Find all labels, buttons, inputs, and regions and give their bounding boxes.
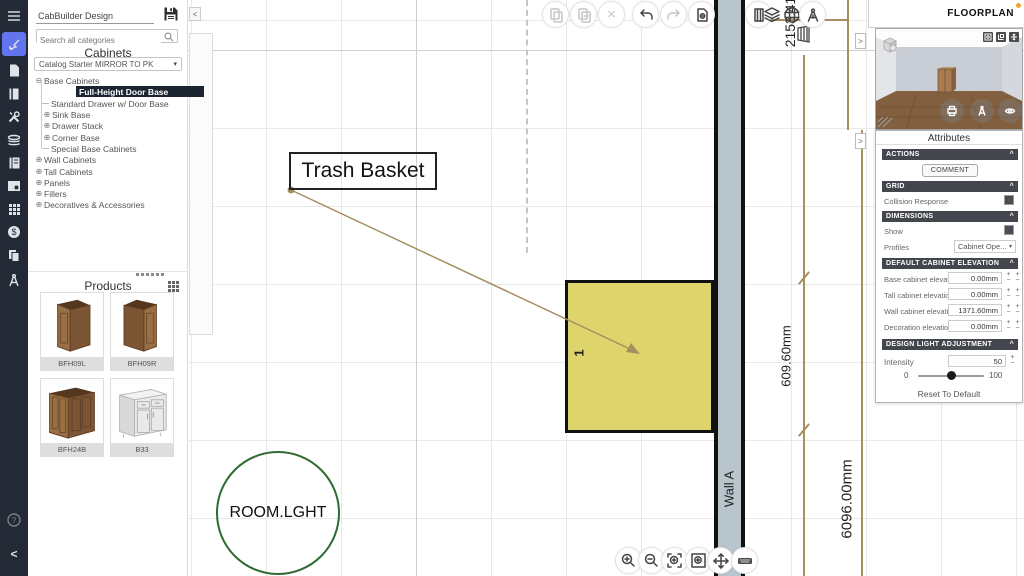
minus-icon[interactable]: − [1009,361,1016,367]
elevation-stepper[interactable]: +− +− [1005,304,1021,316]
product-thumbnail [111,293,173,357]
show-dimensions-label: Show [884,227,903,236]
chevron-up-icon: ^ [1010,341,1014,348]
material-layers-icon [7,134,21,147]
tree-item-label: Sink Base [52,110,90,120]
product-card[interactable]: BFH09R [110,292,174,371]
status-dot [1016,3,1021,8]
reset-to-default-button[interactable]: Reset To Default [876,389,1022,399]
tree-item-full-height-door-base[interactable]: Full-Height Door Base [76,86,204,97]
section-header-light[interactable]: DESIGN LIGHT ADJUSTMENT ^ [882,339,1018,350]
section-header-grid[interactable]: GRID ^ [882,181,1018,192]
nav-catalog[interactable] [0,58,28,82]
tree-item-panels[interactable]: ⊕Panels [34,177,70,188]
collapse-right-icon: > [858,137,863,146]
chevron-up-icon: ^ [1010,213,1014,220]
measure-keyboard-icon [736,552,754,570]
save-floppy-icon [162,5,180,23]
view-title: FLOORPLAN [947,8,1014,19]
measure-keyboard-button[interactable] [731,547,758,574]
undo-icon [638,7,654,23]
products-grid-view-button[interactable] [168,281,179,292]
zoom-fit-icon [690,552,707,569]
nav-pricing[interactable]: $ [0,220,28,244]
duplicate-icon [576,7,592,23]
tree-item-drawer-stack[interactable]: ⊕Drawer Stack [42,120,103,131]
annotation-trash-basket[interactable]: Trash Basket [289,152,437,190]
tools-icon [7,110,21,124]
minus-icon[interactable]: − [1005,278,1012,284]
chevron-down-icon: ▾ [173,60,177,68]
pricing-dollar-icon: $ [7,225,21,239]
products-drag-handle[interactable] [136,273,164,276]
print-button[interactable] [940,99,964,123]
chevron-up-icon: ^ [1010,260,1014,267]
render-screen-icon [7,180,21,192]
tool-palette [189,33,213,335]
elevation-value: 0.00mm [971,322,998,331]
tree-item-sink-base[interactable]: ⊕Sink Base [42,109,90,120]
elevation-row-label: Decoration elevation [884,323,952,332]
section-title: DIMENSIONS [886,213,933,220]
nav-design-active[interactable] [2,32,26,56]
help-icon: ? [7,513,21,527]
minus-icon[interactable]: − [1014,278,1021,284]
preview-collapse-button[interactable]: > [855,33,866,49]
tree-item-label: Decoratives & Accessories [44,200,145,210]
svg-text:?: ? [12,516,17,525]
tree-expand-icon[interactable]: ⊕ [34,155,44,164]
duplicate-button[interactable] [570,1,597,28]
comment-button[interactable]: COMMENT [922,164,978,177]
tree-item-label: Wall Cabinets [44,155,96,165]
view-header: FLOORPLAN [868,0,1024,28]
zoom-selection-button[interactable] [661,547,688,574]
nav-materials[interactable] [0,128,28,152]
grid-view-icon [168,281,179,292]
save-button[interactable] [162,5,180,23]
intensity-stepper[interactable]: +− [1009,355,1016,367]
product-card[interactable]: B33 [110,378,174,457]
drafting-compass-icon [805,7,821,23]
draw-design-icon [7,37,21,51]
section-title: DESIGN LIGHT ADJUSTMENT [886,341,992,348]
show-dimensions-checkbox[interactable] [1004,225,1014,235]
product-code: BFH09L [41,357,103,370]
dimension-text-cabinet: 609.60mm [779,325,794,386]
collision-response-label: Collision Response [884,197,948,206]
catalog-value: Catalog Starter MIRROR TO PK [39,60,153,69]
product-code: BFH09R [111,357,173,370]
tree-expand-icon[interactable]: ⊕ [34,178,44,187]
section-title: DEFAULT CABINET ELEVATION [886,260,999,267]
elevation-row-label: Wall cabinet elevation [884,307,957,316]
tree-item-label: Base Cabinets [44,76,99,86]
tree-item-wall-cabinets[interactable]: ⊕Wall Cabinets [34,154,96,165]
product-thumbnail [41,293,103,357]
copy-icon [548,7,564,23]
zoom-out-icon [643,552,660,569]
tree-item-label: Panels [44,178,70,188]
drafting-compass-icon [7,273,21,288]
slider-min-label: 0 [904,371,908,380]
eye-icon [1004,105,1016,117]
grid-globe-icon [783,6,801,24]
redo-button[interactable] [660,1,687,28]
intensity-slider-thumb[interactable] [947,371,956,380]
nav-door-styles[interactable] [0,82,28,106]
minus-icon[interactable]: − [1014,326,1021,332]
print-icon [946,105,958,117]
tree-expand-icon[interactable]: ⊕ [34,189,44,198]
product-code: BFH24B [41,443,103,456]
elevation-value: 0.00mm [971,274,998,283]
section-header-dimensions[interactable]: DIMENSIONS ^ [882,211,1018,222]
rail-collapse-button[interactable]: < [0,542,28,566]
minus-icon[interactable]: − [1005,294,1012,300]
attributes-title: Attributes [876,131,1022,145]
snapshot-button[interactable] [983,32,993,42]
tree-item-base-cabinets[interactable]: ⊖Base Cabinets [34,75,99,86]
zoom-selection-icon [666,552,683,569]
minus-icon[interactable]: − [1014,294,1021,300]
nav-reports[interactable] [0,151,28,175]
design-name-input[interactable] [36,8,154,24]
elevation-row-label: Tall cabinet elevation [884,291,954,300]
tree-item-label: Corner Base [52,133,100,143]
elevation-stepper[interactable]: +− +− [1005,288,1021,300]
zoom-in-icon [620,552,637,569]
search-icon [164,32,174,42]
tree-item-standard-drawer[interactable]: Standard Drawer w/ Door Base [42,98,169,109]
nav-parts[interactable] [0,197,28,221]
section-title: GRID [886,183,905,190]
delete-button[interactable]: × [598,1,625,28]
elevation-stepper[interactable]: +− +− [1005,272,1021,284]
reset-label: Reset To Default [918,389,981,399]
collision-response-checkbox[interactable] [1004,195,1014,205]
tree-item-corner-base[interactable]: ⊕Corner Base [42,132,100,143]
cabinet-item[interactable] [565,280,714,433]
catalog-document-icon [8,63,21,77]
preview-3d-panel[interactable] [875,28,1023,130]
tree-branch-line [42,103,49,104]
layout-button[interactable] [996,32,1006,42]
elevation-value: 1371.60mm [958,306,998,315]
collapse-right-icon: > [858,37,863,46]
product-thumbnail [41,379,103,443]
tree-item-label: Full-Height Door Base [79,87,168,97]
room-light-symbol[interactable]: ROOM.LGHT [216,451,340,575]
drafting-compass-button[interactable] [799,1,826,28]
intensity-label: Intensity [884,358,914,367]
tree-expand-icon[interactable]: ⊕ [42,133,52,142]
tree-item-label: Special Base Cabinets [51,144,137,154]
cabinet-number: 1 [572,349,587,356]
tree-item-label: Drawer Stack [52,121,103,131]
search-input[interactable] [37,35,161,47]
orbit-view-button[interactable] [998,99,1022,123]
copy-documents-icon [7,248,21,262]
svg-text:$: $ [11,227,16,237]
products-section-title: Products [28,279,188,293]
parts-grid-icon [8,203,21,216]
product-card[interactable]: BFH24B [40,378,104,457]
chevron-up-icon: ^ [1010,151,1014,158]
collapse-left-icon: < [10,547,17,561]
minus-icon[interactable]: − [1005,326,1012,332]
catalog-sidebar: Cabinets Catalog Starter MIRROR TO PK ▾ … [28,0,188,576]
minus-icon[interactable]: − [1005,310,1012,316]
category-search[interactable] [36,29,178,43]
tree-expand-icon[interactable]: ⊕ [34,200,44,209]
copy-button[interactable] [542,1,569,28]
intensity-value: 50 [994,357,1002,366]
tree-item-fillers[interactable]: ⊕Fillers [34,188,67,199]
document-settings-button[interactable] [688,1,715,28]
chevron-up-icon: ^ [1010,183,1014,190]
slider-max-label: 100 [989,371,1002,380]
intensity-input[interactable]: 50 [948,355,1006,367]
catalog-dropdown[interactable]: Catalog Starter MIRROR TO PK ▾ [34,57,182,71]
tree-item-tall-cabinets[interactable]: ⊕Tall Cabinets [34,166,93,177]
section-header-elevation[interactable]: DEFAULT CABINET ELEVATION ^ [882,258,1018,269]
help-button[interactable]: ? [0,508,28,532]
app-window: Trash Basket ROOM.LGHT Wall A 1 2153.41 … [0,0,1024,576]
document-settings-icon [694,7,710,23]
delete-icon: × [607,7,616,22]
tree-expand-icon[interactable]: ⊕ [42,121,52,130]
product-card[interactable]: BFH09L [40,292,104,371]
tree-branch-line [42,148,49,149]
expand-icon [1010,33,1018,41]
attributes-collapse-button[interactable]: > [855,133,866,149]
elevation-row-input[interactable]: 1371.60mm [948,304,1002,316]
annotation-label: Trash Basket [302,159,425,183]
door-styles-icon [8,87,20,101]
elevation-row-input[interactable]: 0.00mm [948,272,1002,284]
chevron-down-icon: ▾ [1009,243,1012,250]
redo-icon [666,7,682,23]
view-cube-icon[interactable] [880,35,900,55]
dimension-text-room: 6096.00mm [839,459,856,538]
nav-tools[interactable] [0,105,28,129]
menu-button[interactable] [0,4,28,28]
wall-label: Wall A [722,471,737,507]
tree-expand-icon[interactable]: ⊕ [42,110,52,119]
hamburger-menu-icon [7,10,21,22]
tree-item-special-base-cabinets[interactable]: Special Base Cabinets [42,143,137,154]
minus-icon[interactable]: − [1014,310,1021,316]
tree-item-decoratives[interactable]: ⊕Decoratives & Accessories [34,199,145,210]
expand-button[interactable] [1009,32,1019,42]
tree-item-label: Standard Drawer w/ Door Base [51,99,169,109]
elevation-row-input[interactable]: 0.00mm [948,288,1002,300]
guide-dashed-line [526,0,528,253]
tree-expand-icon[interactable]: ⊕ [34,167,44,176]
nav-documents[interactable] [0,243,28,267]
section-header-actions[interactable]: ACTIONS ^ [882,149,1018,160]
pan-button[interactable] [707,547,734,574]
compass-button[interactable] [970,99,994,123]
layout-icon [997,33,1005,41]
room-light-label: ROOM.LGHT [230,504,327,522]
tree-expand-icon[interactable]: ⊖ [34,76,44,85]
palette-collapse-button[interactable]: < [189,7,201,21]
tree-item-label: Tall Cabinets [44,167,93,177]
profiles-value: Cabinet Ope... [958,242,1006,251]
profiles-label: Profiles [884,243,909,252]
undo-button[interactable] [632,1,659,28]
product-thumbnail [111,379,173,443]
comment-button-label: COMMENT [931,167,969,174]
drafting-compass-icon [976,105,988,117]
pan-icon [712,552,730,570]
dimension-extension-line [861,130,863,576]
product-code: B33 [111,443,173,456]
profiles-dropdown[interactable]: Cabinet Ope... ▾ [954,240,1016,253]
snapshot-icon [984,33,992,41]
elevation-row-input[interactable]: 0.00mm [948,320,1002,332]
section-title: ACTIONS [886,151,920,158]
nav-drafting[interactable] [0,268,28,292]
elevation-stepper[interactable]: +− +− [1005,320,1021,332]
elevation-value: 0.00mm [971,290,998,299]
collapse-left-icon: < [193,10,198,19]
report-book-icon [8,156,21,170]
tree-item-label: Fillers [44,189,67,199]
products-divider [28,271,188,272]
attributes-panel: Attributes ACTIONS ^ COMMENT GRID ^ Coll… [875,130,1023,403]
dimension-line [803,55,805,576]
nav-render[interactable] [0,174,28,198]
app-navigation-rail: $ ? < [0,0,28,576]
